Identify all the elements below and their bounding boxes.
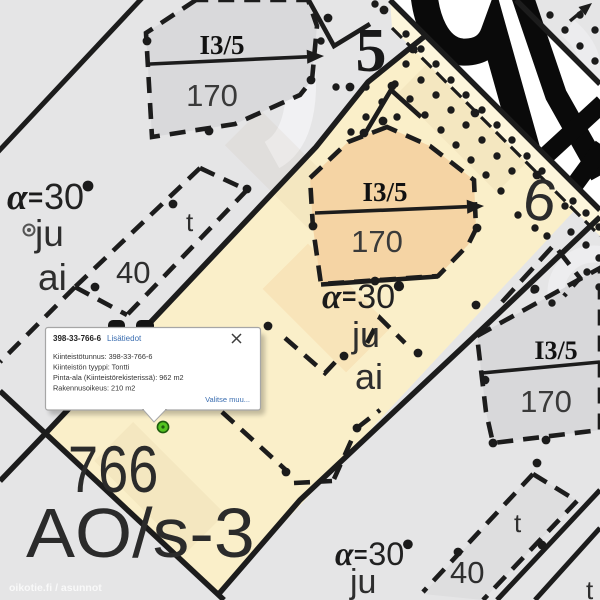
svg-text:Kiinteistötunnus: 398-33-766-6: Kiinteistötunnus: 398-33-766-6 [53,352,152,361]
svg-text:t: t [186,207,194,237]
svg-text:ju: ju [34,213,64,254]
svg-text:40: 40 [116,255,150,290]
svg-text:30: 30 [44,176,84,217]
svg-text:t: t [514,508,522,538]
svg-text:Lisätiedot: Lisätiedot [107,334,142,343]
svg-text:Pinta-ala (Kiinteistörekisteri: Pinta-ala (Kiinteistörekisterissä): 962 … [53,373,184,382]
svg-text:ai: ai [38,257,67,298]
svg-text:170: 170 [186,78,238,113]
svg-text:170: 170 [520,384,572,419]
svg-text:oikotie.fi / asunnot: oikotie.fi / asunnot [9,582,102,594]
svg-text:α: α [7,177,28,218]
svg-text:=: = [28,182,43,212]
svg-text:ai: ai [355,356,383,397]
svg-text:ju: ju [351,314,380,355]
svg-text:AO/s-3: AO/s-3 [26,495,255,573]
svg-text:170: 170 [351,224,403,259]
svg-text:30: 30 [357,278,395,316]
svg-text:I3/5: I3/5 [534,336,577,365]
svg-text:398-33-766-6: 398-33-766-6 [53,334,102,343]
svg-text:Kiinteistön tyyppi: Tontti: Kiinteistön tyyppi: Tontti [53,363,129,372]
svg-text:Rakennusoikeus: 210 m2: Rakennusoikeus: 210 m2 [53,384,135,393]
svg-text:I3/5: I3/5 [362,177,407,207]
svg-text:I3/5: I3/5 [199,30,244,60]
svg-text:Valitse muu...: Valitse muu... [205,395,250,404]
svg-text:=: = [342,284,356,311]
svg-text:40: 40 [450,555,484,590]
svg-text:ju: ju [349,563,376,600]
svg-text:t: t [586,575,594,600]
svg-text:5: 5 [356,17,387,85]
svg-text:α: α [322,277,342,316]
